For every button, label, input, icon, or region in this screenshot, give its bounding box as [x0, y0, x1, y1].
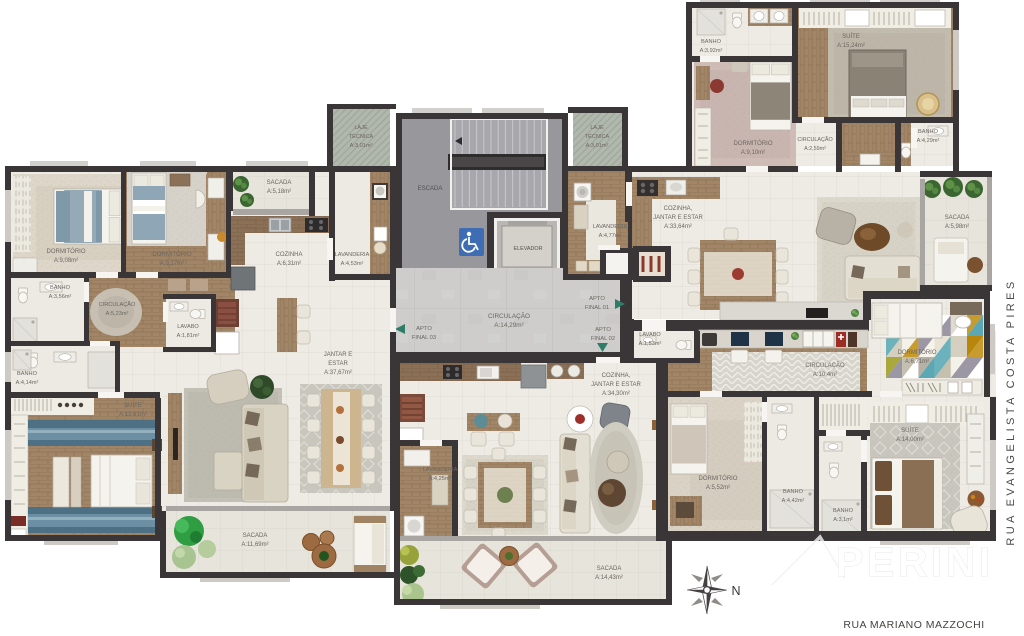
svg-text:JANTAR E ESTAR: JANTAR E ESTAR — [591, 382, 641, 388]
svg-text:A:15,24m²: A:15,24m² — [837, 43, 865, 49]
svg-text:A:9,17m²: A:9,17m² — [160, 261, 184, 267]
svg-text:SACADA: SACADA — [597, 566, 622, 572]
svg-text:TÉCNICA: TÉCNICA — [349, 133, 374, 140]
svg-text:SACADA: SACADA — [243, 533, 268, 539]
svg-text:SUÍTE: SUÍTE — [124, 402, 142, 409]
svg-text:A:4,77m²: A:4,77m² — [599, 233, 622, 239]
svg-text:BANHO: BANHO — [701, 39, 722, 45]
svg-text:DORMITÓRIO: DORMITÓRIO — [153, 251, 192, 258]
svg-text:LAVANDERIA: LAVANDERIA — [335, 252, 370, 258]
svg-text:CIRCULAÇÃO: CIRCULAÇÃO — [805, 362, 845, 369]
svg-text:A:4,53m²: A:4,53m² — [341, 261, 364, 267]
svg-text:COZINHA,: COZINHA, — [664, 206, 693, 212]
svg-text:A:37,67m²: A:37,67m² — [324, 370, 352, 376]
svg-text:A:3,1m²: A:3,1m² — [833, 517, 853, 523]
svg-text:A:5,98m²: A:5,98m² — [945, 224, 969, 230]
svg-text:ESTAR: ESTAR — [328, 361, 348, 367]
svg-text:BANHO: BANHO — [50, 285, 71, 291]
svg-text:JANTAR E: JANTAR E — [324, 352, 353, 358]
svg-text:A:3,01m²: A:3,01m² — [586, 143, 609, 149]
svg-text:A:6,71m²: A:6,71m² — [905, 359, 929, 365]
svg-text:APTO: APTO — [589, 296, 605, 302]
svg-text:RUA EVANGELISTA COSTA PIRES: RUA EVANGELISTA COSTA PIRES — [1005, 278, 1017, 545]
svg-text:ESCADA: ESCADA — [418, 186, 443, 192]
svg-text:CIRCULAÇÃO: CIRCULAÇÃO — [488, 311, 530, 320]
svg-text:A:10,4m²: A:10,4m² — [813, 372, 837, 378]
svg-text:FINAL 01: FINAL 01 — [585, 305, 609, 311]
svg-text:LAJE: LAJE — [590, 125, 604, 131]
svg-text:BANHO: BANHO — [17, 371, 38, 377]
svg-text:A:3,92m²: A:3,92m² — [700, 48, 723, 54]
svg-text:TÉCNICA: TÉCNICA — [585, 133, 610, 140]
svg-text:A:14,29m²: A:14,29m² — [494, 322, 523, 329]
svg-text:DORMITÓRIO: DORMITÓRIO — [47, 248, 86, 255]
svg-text:LAVABO: LAVABO — [639, 332, 661, 338]
svg-text:COZINHA,: COZINHA, — [602, 373, 631, 379]
svg-text:ELEVADOR: ELEVADOR — [514, 246, 543, 252]
svg-text:A:33,64m²: A:33,64m² — [664, 224, 692, 230]
svg-text:PERINI: PERINI — [836, 539, 994, 585]
svg-text:A:4,25m²: A:4,25m² — [429, 476, 452, 482]
svg-text:SUÍTE: SUÍTE — [901, 427, 919, 434]
svg-text:DORMITÓRIO: DORMITÓRIO — [898, 349, 937, 356]
svg-text:A:3,01m²: A:3,01m² — [350, 143, 373, 149]
svg-text:BANHO: BANHO — [783, 489, 804, 495]
svg-text:A:6,31m²: A:6,31m² — [277, 261, 301, 267]
svg-text:A:5,23m²: A:5,23m² — [106, 311, 129, 317]
svg-text:BANHO: BANHO — [918, 129, 939, 135]
svg-text:A:9,10m²: A:9,10m² — [741, 150, 765, 156]
svg-text:SUÍTE: SUÍTE — [842, 33, 860, 40]
svg-text:SACADA: SACADA — [945, 215, 970, 221]
svg-text:CIRCULAÇÃO: CIRCULAÇÃO — [99, 301, 136, 308]
svg-text:A:1,53m²: A:1,53m² — [639, 341, 662, 347]
svg-text:A:34,30m²: A:34,30m² — [602, 391, 630, 397]
svg-text:A:5,18m²: A:5,18m² — [267, 189, 291, 195]
svg-text:A:11,69m²: A:11,69m² — [241, 542, 268, 548]
svg-text:BANHO: BANHO — [833, 508, 854, 514]
svg-text:A:13,61m²: A:13,61m² — [119, 412, 147, 418]
svg-text:FINAL 02: FINAL 02 — [591, 336, 615, 342]
svg-text:N: N — [731, 584, 740, 598]
svg-text:A:4,14m²: A:4,14m² — [16, 380, 39, 386]
svg-text:A:3,56m²: A:3,56m² — [49, 294, 72, 300]
svg-text:A:4,42m²: A:4,42m² — [782, 498, 805, 504]
svg-text:APTO: APTO — [416, 326, 432, 332]
svg-text:A:1,81m²: A:1,81m² — [177, 333, 200, 339]
svg-text:JANTAR E ESTAR: JANTAR E ESTAR — [653, 215, 703, 221]
svg-text:A:4,29m²: A:4,29m² — [917, 138, 940, 144]
svg-text:DORMITÓRIO: DORMITÓRIO — [734, 140, 773, 147]
svg-text:APTO: APTO — [595, 327, 611, 333]
svg-text:A:5,52m²: A:5,52m² — [706, 485, 730, 491]
svg-text:LAVANDERIA: LAVANDERIA — [423, 467, 458, 473]
svg-text:A:14,00m²: A:14,00m² — [896, 437, 924, 443]
svg-text:LAJE: LAJE — [354, 125, 368, 131]
svg-text:CIRCULAÇÃO: CIRCULAÇÃO — [797, 136, 832, 143]
svg-text:A:14,43m²: A:14,43m² — [595, 575, 623, 581]
svg-text:FINAL 03: FINAL 03 — [412, 335, 436, 341]
svg-text:LAVANDERIA: LAVANDERIA — [593, 224, 628, 230]
svg-text:LAVABO: LAVABO — [177, 324, 199, 330]
svg-text:A:9,08m²: A:9,08m² — [54, 258, 78, 264]
svg-text:A:2,59m²: A:2,59m² — [804, 146, 826, 152]
svg-text:SACADA: SACADA — [267, 180, 292, 186]
svg-text:RUA MARIANO MAZZOCHI: RUA MARIANO MAZZOCHI — [843, 619, 984, 631]
svg-text:DORMITÓRIO: DORMITÓRIO — [699, 475, 738, 482]
svg-text:COZINHA: COZINHA — [276, 252, 303, 258]
